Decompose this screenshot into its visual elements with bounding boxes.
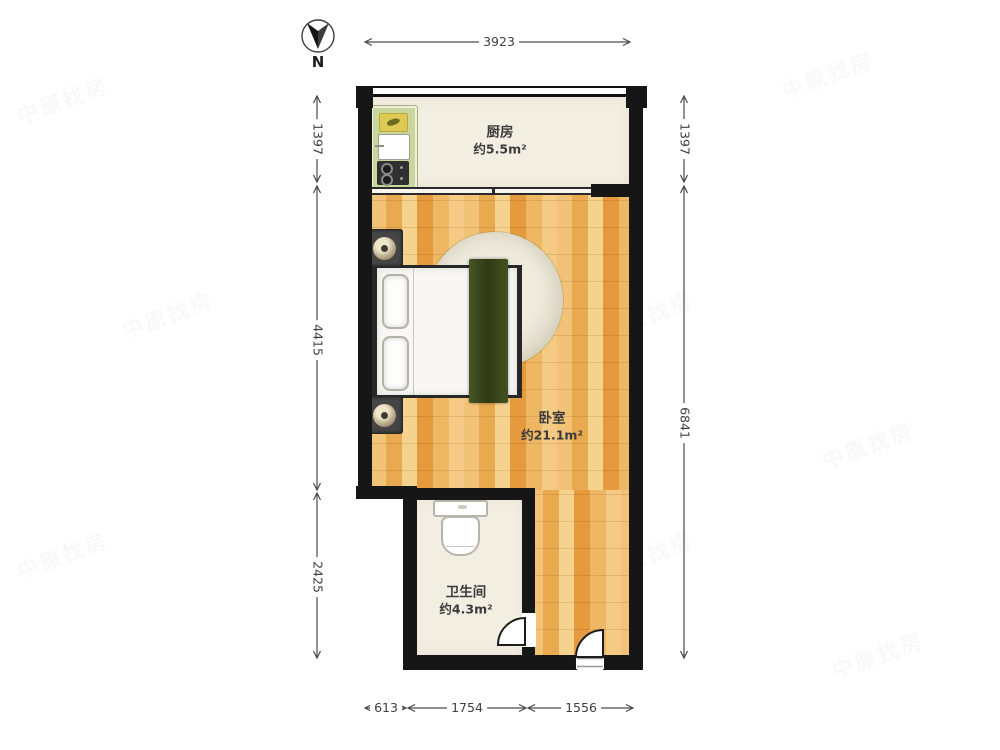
wall-divider-segment <box>591 184 631 197</box>
kitchen-name: 厨房 <box>473 124 526 141</box>
dim-right-kitchen: 1397 <box>676 119 693 159</box>
dim-arrows-right <box>681 96 688 658</box>
watermark-text: 中原找房 <box>828 624 928 685</box>
wall-bathroom-top <box>403 488 535 500</box>
watermark-text: 中原找房 <box>13 524 113 585</box>
wall-left <box>358 93 372 499</box>
entry-threshold-lines <box>577 659 603 667</box>
kitchen-area: 约5.5m² <box>473 142 526 158</box>
stove-icon <box>377 161 409 185</box>
dim-bottom-bedroom: 1556 <box>561 700 601 717</box>
wall-right <box>629 86 643 670</box>
toilet-icon <box>433 500 488 517</box>
floor-plan: 中原找房 中原找房 中原找房 中原找房 中原找房 中原找房 中原找房 中原找房 <box>0 0 1000 750</box>
north-arrow-icon-right <box>318 23 329 49</box>
cutting-board-icon <box>379 113 408 132</box>
dim-bottom-bathroom: 1754 <box>447 700 487 717</box>
wall-bathroom-right <box>522 488 535 614</box>
burner <box>381 174 393 186</box>
kitchen-label: 厨房 约5.5m² <box>473 124 526 157</box>
sliding-door-junction <box>492 187 495 195</box>
watermark-text: 中原找房 <box>778 44 878 105</box>
wall-bottom-right <box>603 655 643 670</box>
faucet <box>375 145 384 147</box>
north-compass <box>302 20 334 52</box>
mattress-seam <box>413 268 414 395</box>
compass-circle <box>302 20 334 52</box>
lamp-knob <box>381 245 388 252</box>
dim-bottom-offset: 613 <box>370 700 402 717</box>
toilet-button <box>458 505 467 509</box>
stove-knob <box>400 177 403 180</box>
dim-right-main: 6841 <box>676 403 693 443</box>
dim-left-kitchen: 1397 <box>309 119 326 159</box>
sliding-door <box>372 187 591 195</box>
board-mark <box>386 117 400 127</box>
bedroom-floor-lower <box>528 490 629 657</box>
entry-threshold <box>576 656 604 669</box>
window-top <box>358 86 646 97</box>
compass-label: N <box>312 53 325 71</box>
lamp-icon <box>373 404 396 427</box>
pillow <box>382 336 409 391</box>
wall-bottom-left <box>403 655 577 670</box>
watermark-text: 中原找房 <box>13 69 113 130</box>
dim-top-width: 3923 <box>479 34 519 51</box>
bedroom-area: 约21.1m² <box>521 428 583 444</box>
toilet-bowl <box>441 516 480 556</box>
kitchen-counter <box>371 106 417 190</box>
dim-left-bathroom: 2425 <box>309 557 326 597</box>
stove-knob <box>400 166 403 169</box>
pillow <box>382 274 409 329</box>
lamp-knob <box>381 412 388 419</box>
dim-left-bedroom: 4415 <box>309 320 326 360</box>
bathroom-area: 约4.3m² <box>439 602 492 618</box>
toilet-seam <box>446 546 475 547</box>
sink-icon <box>378 134 410 160</box>
bedroom-label: 卧室 约21.1m² <box>521 410 583 443</box>
wall-bathroom-left <box>403 486 417 670</box>
watermark-text: 中原找房 <box>818 414 918 475</box>
bathroom-label: 卫生间 约4.3m² <box>439 584 492 617</box>
north-arrow-icon <box>307 23 318 49</box>
bedroom-name: 卧室 <box>521 410 583 427</box>
bathroom-name: 卫生间 <box>439 584 492 601</box>
blanket <box>469 259 508 403</box>
watermark-text: 中原找房 <box>118 284 218 345</box>
lamp-icon <box>373 237 396 260</box>
